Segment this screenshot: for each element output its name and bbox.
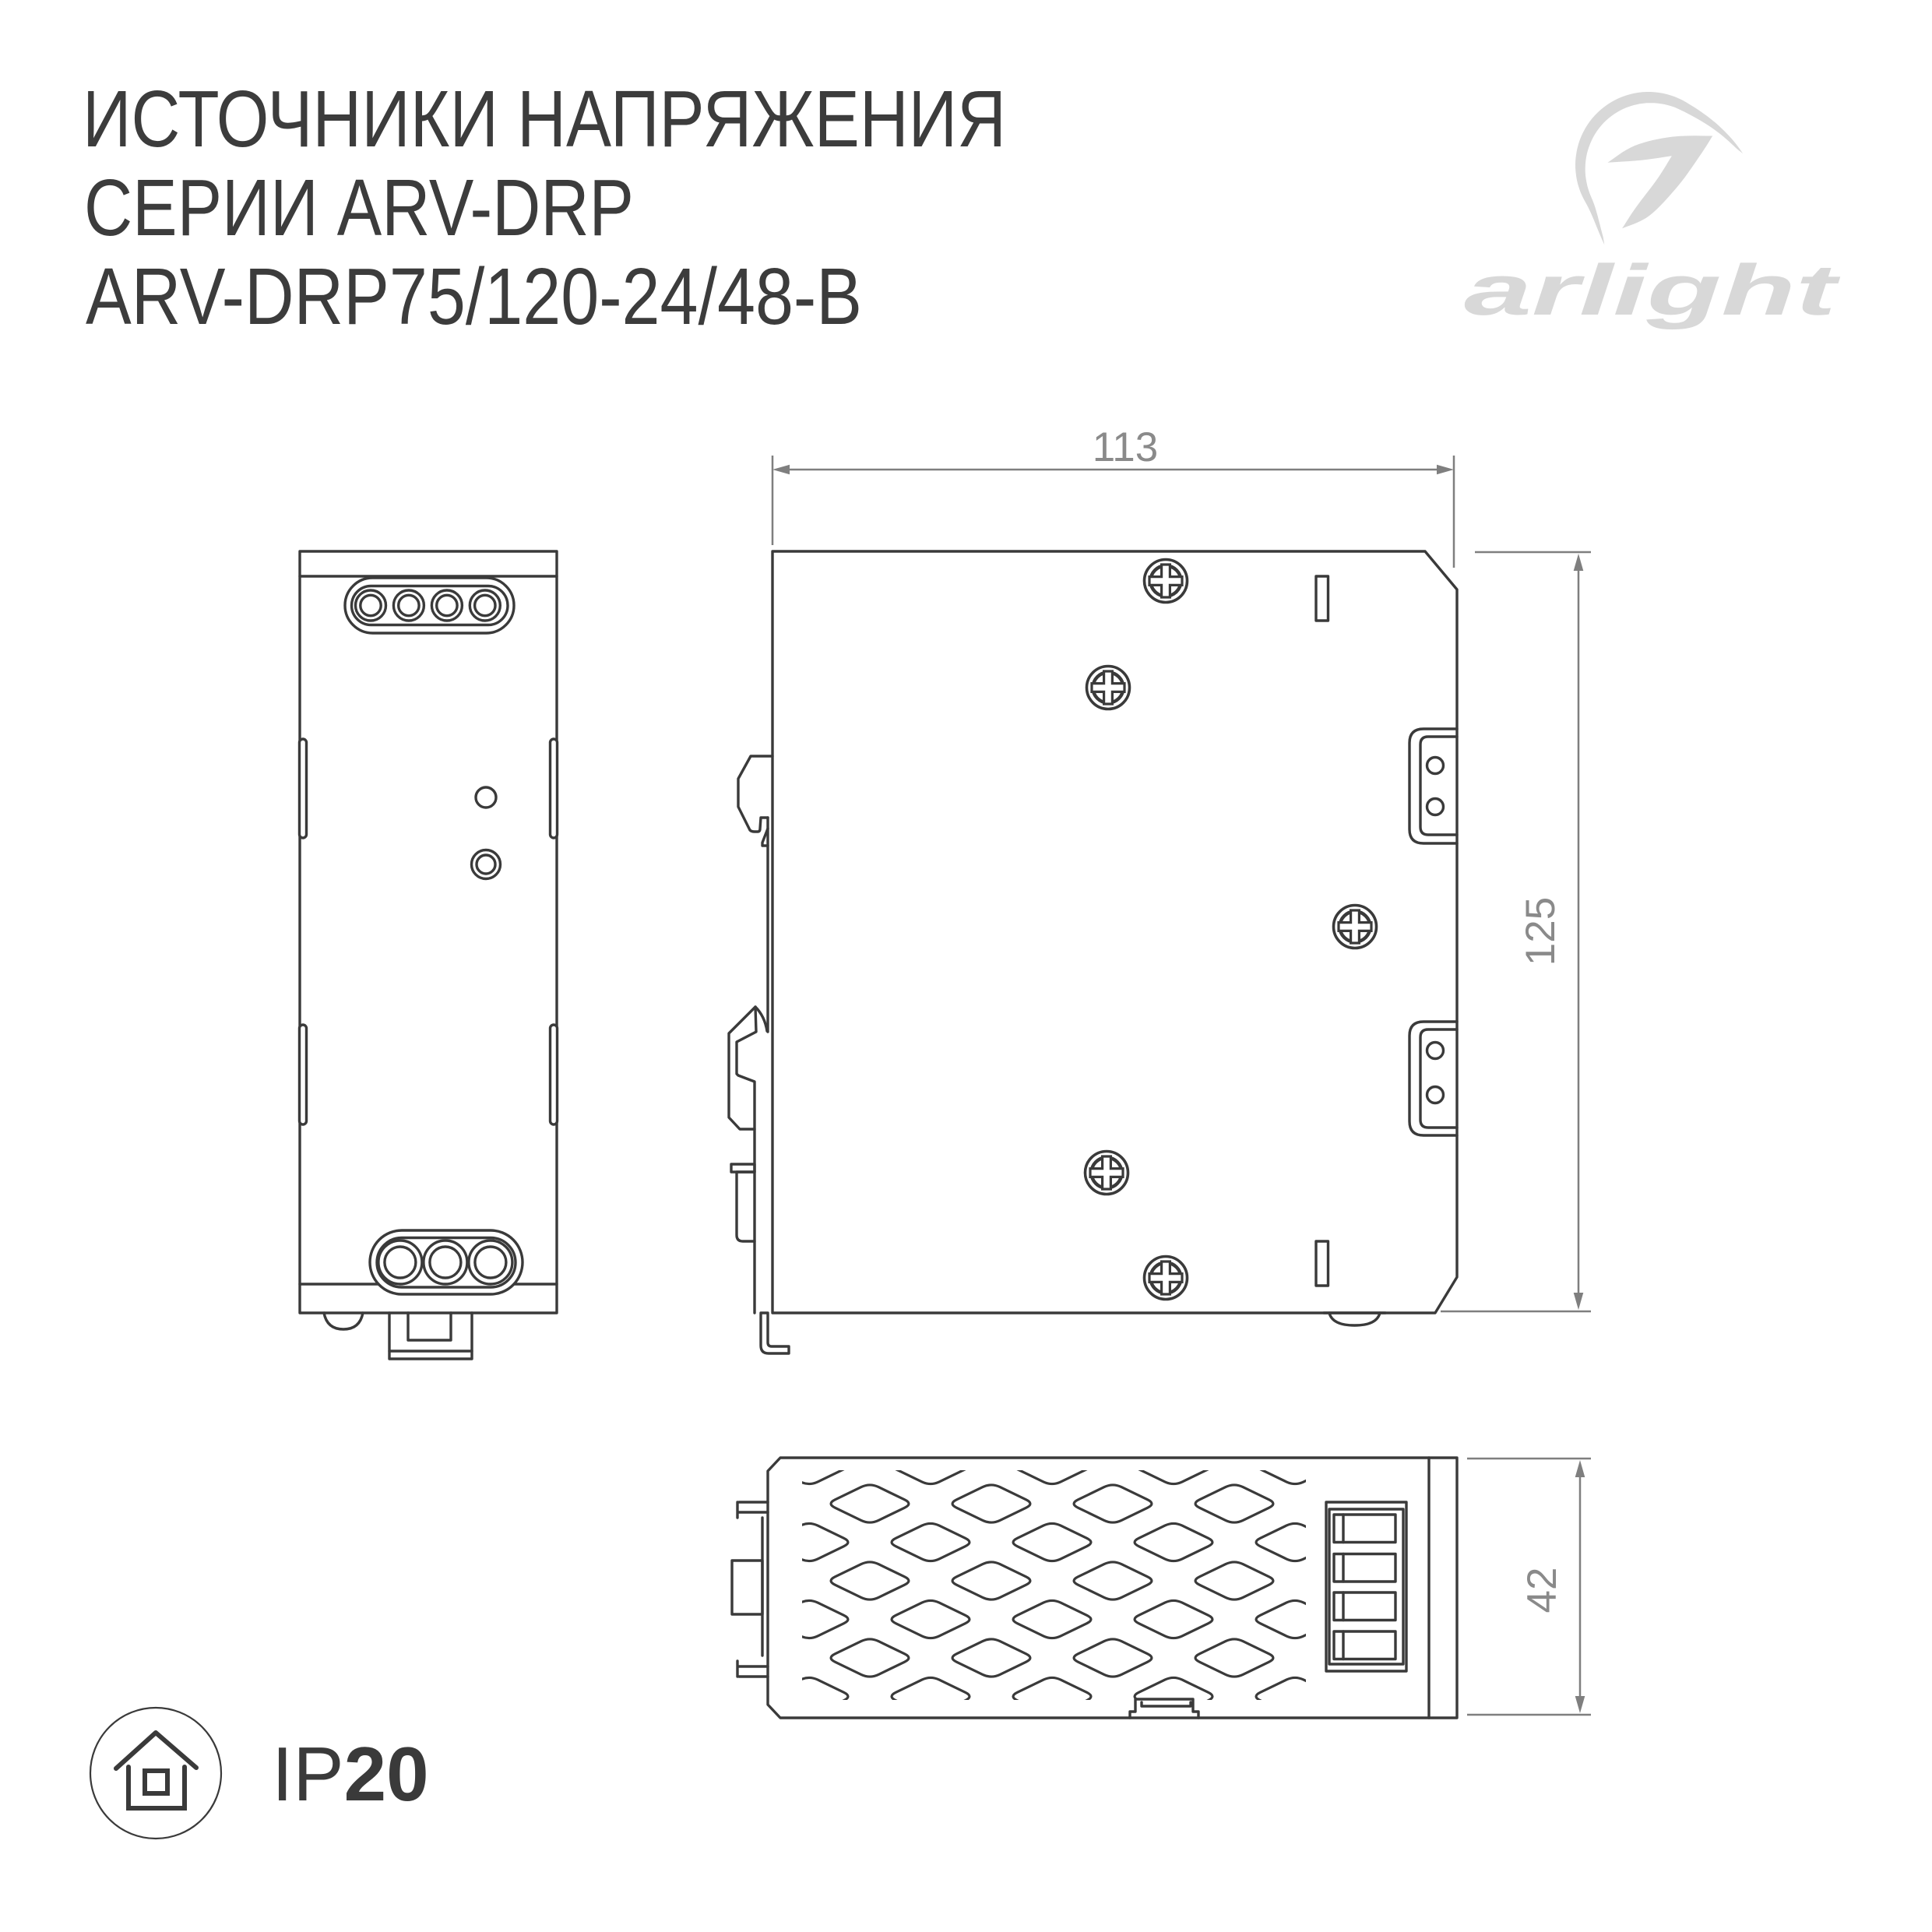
- svg-text:СЕРИИ ARV-DRP: СЕРИИ ARV-DRP: [84, 163, 634, 252]
- svg-text:arlight: arlight: [1464, 251, 1841, 331]
- svg-text:42: 42: [1519, 1568, 1565, 1614]
- svg-text:ИСТОЧНИКИ НАПРЯЖЕНИЯ: ИСТОЧНИКИ НАПРЯЖЕНИЯ: [83, 74, 1006, 164]
- svg-text:113: 113: [1093, 424, 1159, 470]
- svg-text:ARV-DRP75/120-24/48-B: ARV-DRP75/120-24/48-B: [86, 252, 862, 341]
- svg-text:IP20: IP20: [272, 1731, 429, 1817]
- svg-text:125: 125: [1518, 897, 1564, 966]
